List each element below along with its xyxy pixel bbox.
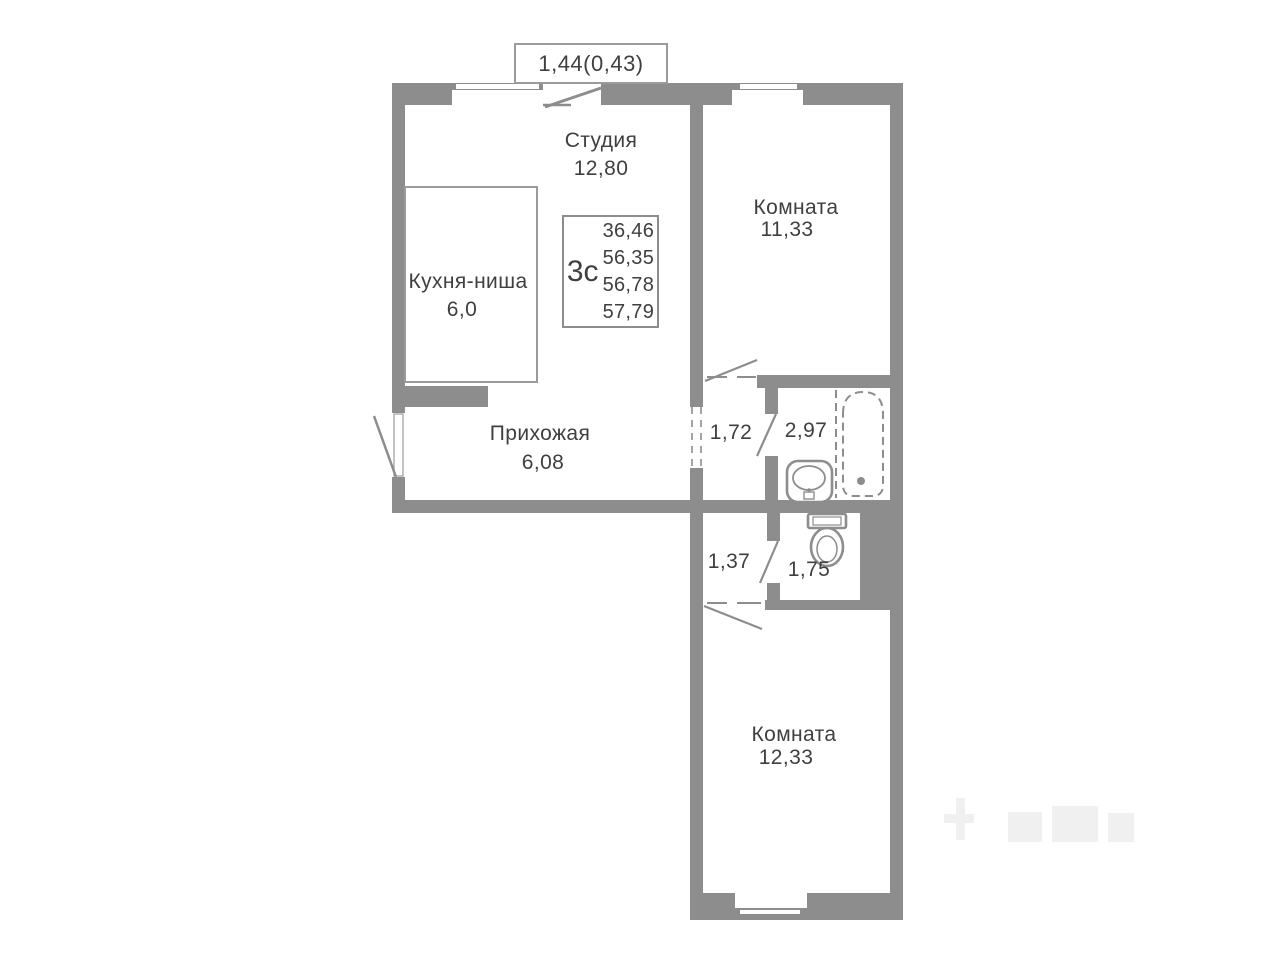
bathroom-door-swing-line xyxy=(757,414,776,456)
room-area-room-bottom: 12,33 xyxy=(759,746,814,770)
entrance-door-frame xyxy=(394,414,403,476)
room-area-studio: 12,80 xyxy=(574,157,629,181)
room-area-kitchen: 6,0 xyxy=(447,298,477,322)
balcony-door-opening xyxy=(543,83,601,105)
room-bottom-window xyxy=(735,893,807,914)
room-label-kitchen: Кухня-ниша xyxy=(408,270,527,294)
area-value: 56,35 xyxy=(603,245,655,272)
room-top-window xyxy=(732,84,803,105)
balcony-label-box: 1,44(0,43) xyxy=(514,43,668,84)
bathtub-icon xyxy=(836,390,883,498)
room-label-room-bottom: Комната xyxy=(751,723,836,747)
room-bottom-door-swing-line xyxy=(704,606,762,629)
studio-window xyxy=(452,84,543,105)
room-label-room-top: Комната xyxy=(753,196,838,220)
area-value: 56,78 xyxy=(603,272,655,299)
floor-plan: 1,44(0,43) 3с 36,46 56,35 56,78 57,79 Ст… xyxy=(0,0,1280,960)
entrance-door-swing-line xyxy=(374,416,396,477)
room-label-studio: Студия xyxy=(565,129,638,153)
area-value: 36,46 xyxy=(603,218,655,245)
area-value: 57,79 xyxy=(603,299,655,326)
wc-door-swing-line xyxy=(760,541,778,583)
dashed-opening xyxy=(690,407,703,468)
room-area-corridor1: 1,72 xyxy=(710,421,752,445)
balcony-area-label: 1,44(0,43) xyxy=(538,51,643,77)
room-area-wc: 1,75 xyxy=(788,558,830,582)
room-label-hallway: Прихожая xyxy=(490,422,591,446)
apartment-info-box: 3с 36,46 56,35 56,78 57,79 xyxy=(562,215,659,328)
apartment-areas-list: 36,46 56,35 56,78 57,79 xyxy=(603,218,655,326)
room-area-room-top: 11,33 xyxy=(761,218,814,242)
room-area-corridor2: 1,37 xyxy=(708,550,750,574)
apartment-type-label: 3с xyxy=(567,255,599,289)
room-area-bathroom: 2,97 xyxy=(785,419,827,443)
washbasin-icon xyxy=(787,461,832,502)
room-area-hallway: 6,08 xyxy=(522,451,564,475)
